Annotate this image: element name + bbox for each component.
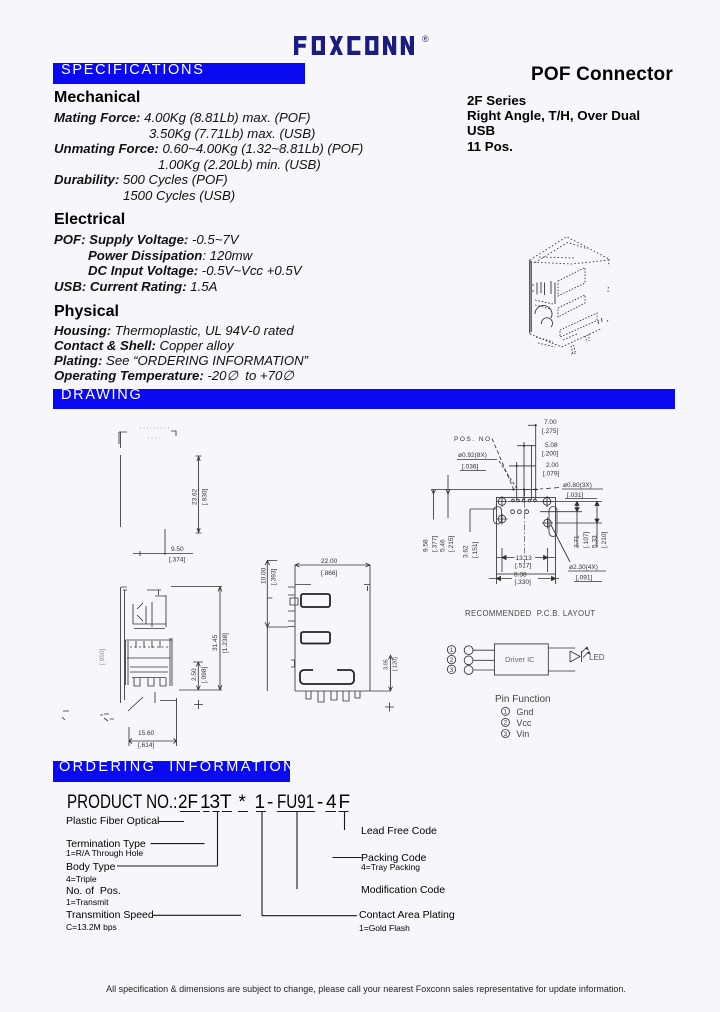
svg-text:9.50: 9.50	[171, 546, 184, 553]
svg-text:3.62: 3.62	[463, 545, 470, 558]
svg-text:22.00: 22.00	[321, 558, 338, 565]
svg-text:[.031]: [.031]	[567, 492, 583, 499]
svg-text:2.00: 2.00	[546, 462, 559, 469]
svg-text:5.08: 5.08	[545, 442, 558, 449]
svg-text:ø0.80(3X): ø0.80(3X)	[563, 482, 592, 489]
svg-text:Vcc: Vcc	[516, 718, 532, 728]
svg-text:[.950]: [.950]	[99, 649, 106, 665]
svg-text:LED: LED	[589, 653, 605, 662]
svg-text:3.05: 3.05	[384, 659, 390, 670]
svg-text:[.393]: [.393]	[271, 569, 278, 585]
svg-text:Pin Function: Pin Function	[495, 694, 551, 705]
svg-text:[.614]: [.614]	[138, 742, 154, 749]
svg-text:7.00: 7.00	[544, 419, 557, 426]
svg-text:ø0.92(8X): ø0.92(8X)	[458, 452, 487, 459]
svg-text:[.215]: [.215]	[448, 536, 455, 552]
svg-text:5.33: 5.33	[592, 535, 599, 548]
svg-text:[.517]: [.517]	[515, 563, 531, 570]
svg-text:9.58: 9.58	[423, 539, 430, 552]
svg-text:Vin: Vin	[516, 729, 529, 739]
svg-text:10.00: 10.00	[261, 567, 268, 584]
svg-text:[.036]: [.036]	[462, 464, 478, 471]
svg-text:[1.238]: [1.238]	[222, 633, 229, 653]
svg-text:RECOMMENDED P.C.B. LAYOUT: RECOMMENDED P.C.B. LAYOUT	[465, 609, 596, 618]
svg-text:ø2.30(4X): ø2.30(4X)	[569, 564, 598, 571]
svg-text:[.120]: [.120]	[393, 657, 399, 671]
svg-text:[.275]: [.275]	[542, 428, 558, 435]
svg-text:[.377]: [.377]	[432, 536, 439, 552]
svg-text:15.60: 15.60	[138, 730, 155, 737]
svg-text:[.200]: [.200]	[542, 451, 558, 458]
svg-text:[.107]: [.107]	[583, 532, 590, 548]
svg-text:[.866]: [.866]	[321, 570, 337, 577]
svg-text:[.374]: [.374]	[169, 557, 185, 564]
svg-text:[.930]: [.930]	[202, 489, 209, 505]
svg-text:[.210]: [.210]	[601, 532, 608, 548]
svg-text:31.45: 31.45	[212, 634, 219, 651]
svg-text:®: ®	[422, 34, 429, 44]
svg-text:13.13: 13.13	[516, 555, 533, 562]
svg-text:[.151]: [.151]	[472, 542, 479, 558]
svg-text:8.38: 8.38	[514, 572, 527, 579]
svg-text:2.50: 2.50	[191, 668, 198, 681]
svg-text:Gnd: Gnd	[516, 707, 533, 717]
svg-text:[.079]: [.079]	[543, 471, 559, 478]
svg-text:Driver IC: Driver IC	[505, 655, 535, 664]
svg-text:23.62: 23.62	[192, 488, 199, 505]
svg-text:[.098]: [.098]	[201, 667, 208, 683]
svg-text:[.330]: [.330]	[515, 579, 531, 586]
svg-text:2.71: 2.71	[574, 535, 581, 548]
svg-text:[.091]: [.091]	[576, 575, 592, 582]
svg-text:5.46: 5.46	[440, 539, 447, 552]
svg-text:POS. NO.: POS. NO.	[454, 436, 495, 443]
